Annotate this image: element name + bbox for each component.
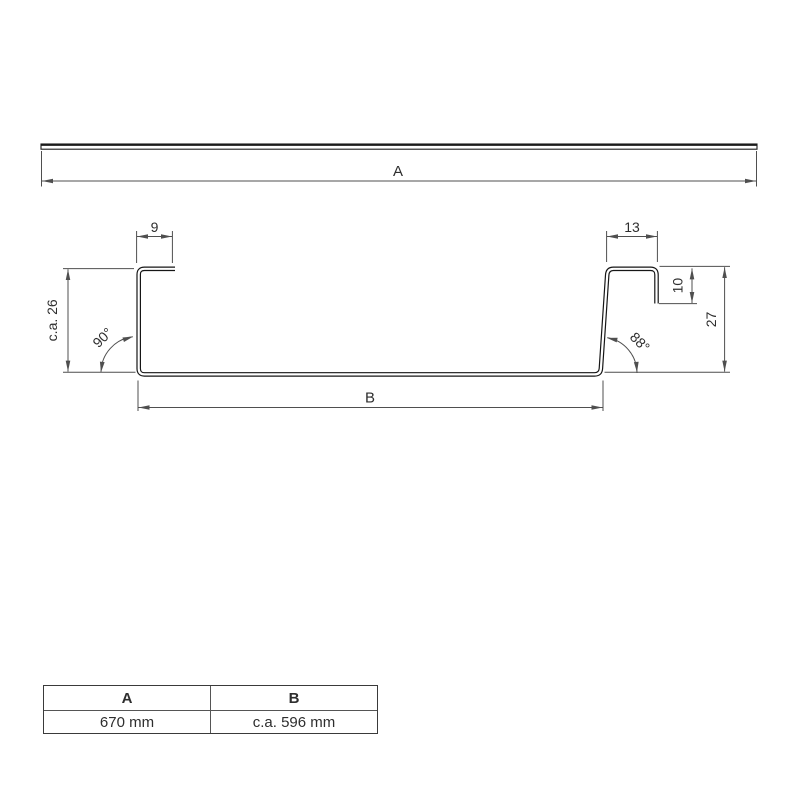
profile-cross-section <box>139 269 657 375</box>
dimension-a-label: A <box>393 163 403 180</box>
spec-table-header-b: B <box>211 686 377 711</box>
dimension-left-height <box>63 269 136 373</box>
drawing-svg: A 9 13 10 27 <box>0 0 800 800</box>
dimension-b-label: B <box>365 390 375 407</box>
dimension-flange-right-label: 13 <box>624 219 640 235</box>
technical-drawing-canvas: A 9 13 10 27 <box>0 0 800 800</box>
dimension-left-height-label: c.a. 26 <box>44 299 60 341</box>
dimension-flange-left-label: 9 <box>151 219 159 235</box>
spec-table-value-b: c.a. 596 mm <box>211 711 377 733</box>
dimension-right-height-label: 27 <box>703 312 719 328</box>
spec-table: A B 670 mm c.a. 596 mm <box>43 685 378 734</box>
dimension-flange-left <box>137 231 173 263</box>
spec-table-header-a: A <box>44 686 211 711</box>
flat-sheet-profile <box>41 144 757 149</box>
angle-right-label: 88° <box>627 329 653 355</box>
dimension-flange-right <box>607 231 658 262</box>
spec-table-value-a: 670 mm <box>44 711 211 733</box>
dimension-hook-depth-label: 10 <box>670 278 686 294</box>
